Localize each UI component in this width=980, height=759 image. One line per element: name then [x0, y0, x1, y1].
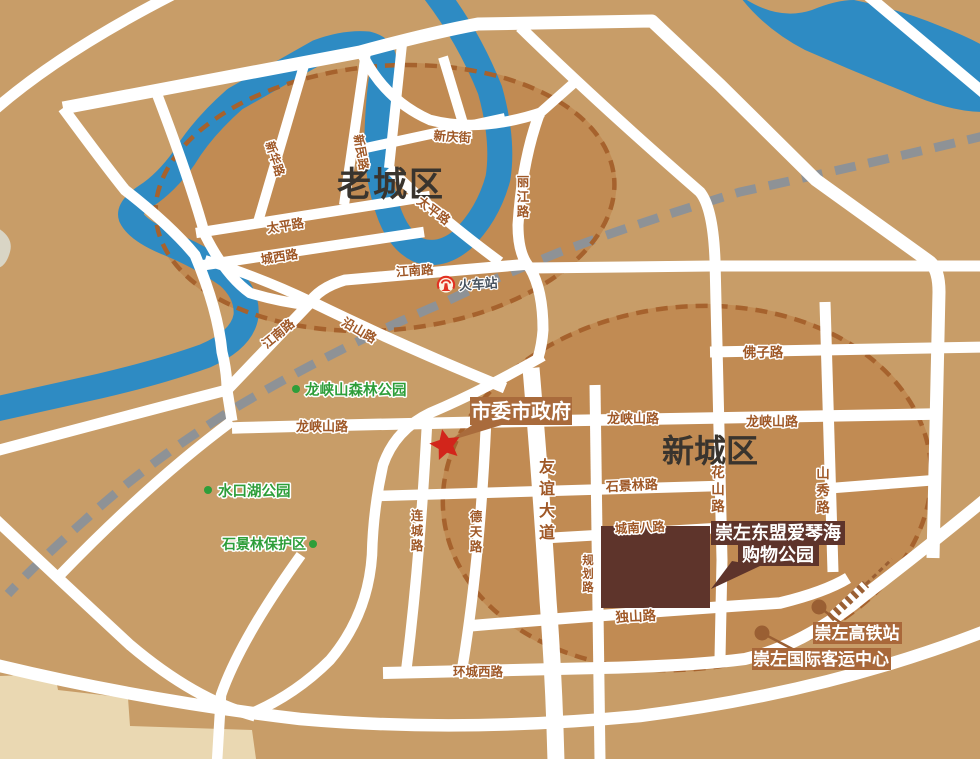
svg-text:城南八路: 城南八路 — [614, 519, 665, 537]
svg-text:独山路: 独山路 — [615, 607, 657, 625]
svg-text:丽江路: 丽江路 — [517, 175, 530, 219]
svg-text:江南路: 江南路 — [395, 262, 434, 280]
svg-text:购物公园: 购物公园 — [742, 544, 814, 565]
svg-text:新庆街: 新庆街 — [433, 128, 472, 146]
svg-text:规划路: 规划路 — [582, 553, 594, 594]
svg-text:石景林保护区: 石景林保护区 — [221, 536, 306, 552]
svg-text:连城路: 连城路 — [411, 508, 424, 553]
svg-text:崇左东盟爱琴海: 崇左东盟爱琴海 — [715, 522, 841, 543]
svg-text:德天路: 德天路 — [470, 509, 483, 554]
svg-text:新城区: 新城区 — [662, 433, 758, 469]
svg-text:石景林路: 石景林路 — [604, 477, 659, 495]
svg-text:花山路: 花山路 — [711, 464, 725, 514]
svg-text:水口湖公园: 水口湖公园 — [218, 482, 291, 500]
svg-text:市委市政府: 市委市政府 — [471, 399, 571, 423]
svg-text:火车站: 火车站 — [458, 275, 498, 293]
svg-text:龙峡山路: 龙峡山路 — [746, 414, 799, 429]
svg-text:崇左高铁站: 崇左高铁站 — [815, 623, 900, 643]
svg-text:龙峡山路: 龙峡山路 — [296, 419, 349, 434]
svg-text:佛子路: 佛子路 — [742, 344, 784, 360]
svg-text:环城西路: 环城西路 — [453, 664, 504, 679]
svg-text:龙峡山路: 龙峡山路 — [607, 411, 660, 426]
svg-text:龙峡山森林公园: 龙峡山森林公园 — [304, 381, 407, 399]
svg-text:山秀路: 山秀路 — [815, 466, 830, 515]
svg-text:崇左国际客运中心: 崇左国际客运中心 — [753, 649, 889, 669]
